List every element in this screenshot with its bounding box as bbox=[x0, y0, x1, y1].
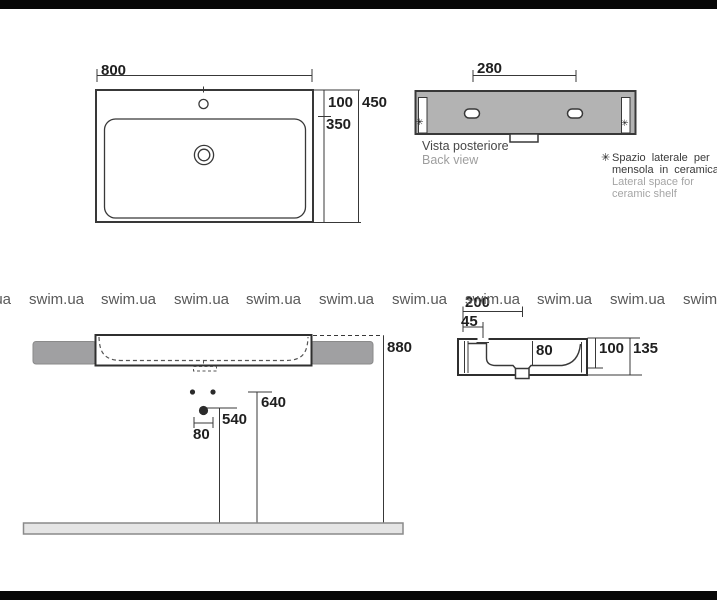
front-view-drawing bbox=[24, 335, 404, 534]
watermark-text: swim.ua bbox=[246, 291, 301, 309]
watermark-text: swim.ua bbox=[683, 291, 717, 309]
dim-label-450: 450 bbox=[362, 95, 387, 110]
note-line1-english: Lateral space for bbox=[612, 176, 694, 188]
dim-label-80-side: 80 bbox=[536, 343, 553, 358]
dim-label-100-top: 100 bbox=[328, 95, 353, 110]
technical-drawing-sheet: 800 100 450 350 280 880 640 540 80 200 4… bbox=[0, 0, 717, 600]
dim-label-540: 540 bbox=[222, 412, 247, 427]
watermark-text: swim.ua bbox=[0, 291, 11, 309]
watermark-row: swim.ua swim.ua swim.ua swim.ua swim.ua … bbox=[0, 291, 717, 311]
back-view-drawing bbox=[416, 70, 636, 142]
back-view-caption-english: Back view bbox=[422, 154, 478, 167]
dim-label-880: 880 bbox=[387, 340, 412, 355]
shelf-space-marker-left-icon: ✳ bbox=[416, 118, 424, 127]
note-line2-english: ceramic shelf bbox=[612, 188, 677, 200]
dim-label-135: 135 bbox=[633, 341, 658, 356]
watermark-text: swim.ua bbox=[537, 291, 592, 309]
shelf-space-marker-right-icon: ✳ bbox=[621, 119, 629, 128]
watermark-text: swim.ua bbox=[101, 291, 156, 309]
watermark-text: swim.ua bbox=[465, 291, 520, 309]
dim-label-45: 45 bbox=[461, 314, 478, 329]
dim-label-640: 640 bbox=[261, 395, 286, 410]
watermark-text: swim.ua bbox=[174, 291, 229, 309]
watermark-text: swim.ua bbox=[319, 291, 374, 309]
watermark-text: swim.ua bbox=[29, 291, 84, 309]
dim-label-100-side: 100 bbox=[599, 341, 624, 356]
dim-label-800: 800 bbox=[101, 63, 126, 78]
watermark-text: swim.ua bbox=[610, 291, 665, 309]
watermark-text: swim.ua bbox=[392, 291, 447, 309]
back-view-caption-italian: Vista posteriore bbox=[422, 140, 509, 153]
dim-label-80-front: 80 bbox=[193, 427, 210, 442]
note-line1-italian: Spazio laterale per bbox=[612, 152, 710, 164]
note-line2-italian: mensola in ceramica bbox=[612, 164, 717, 176]
top-view-plan bbox=[96, 69, 361, 223]
note-marker-icon: ✳ bbox=[601, 153, 610, 164]
dim-label-280: 280 bbox=[477, 61, 502, 76]
dim-label-350: 350 bbox=[326, 117, 351, 132]
